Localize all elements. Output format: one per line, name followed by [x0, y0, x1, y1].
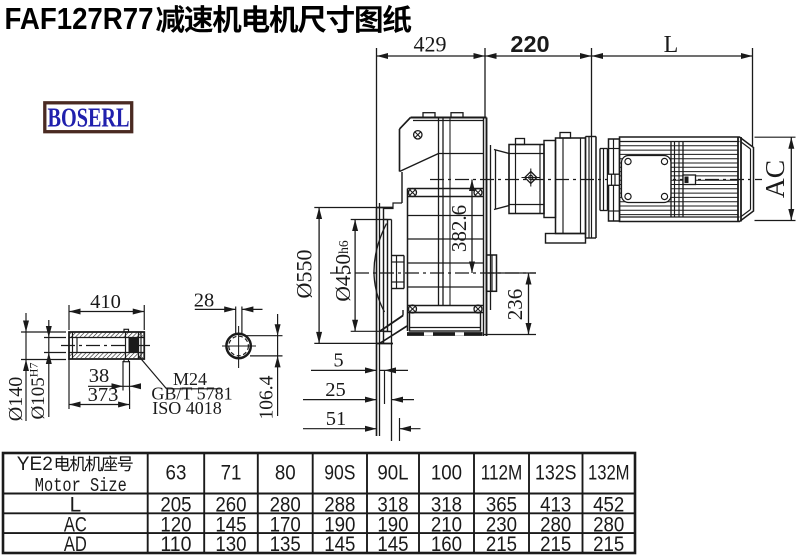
svg-text:373: 373	[88, 384, 119, 406]
svg-text:Ø550: Ø550	[292, 250, 317, 299]
svg-text:382.6: 382.6	[447, 205, 471, 252]
svg-text:Ø140: Ø140	[5, 377, 27, 421]
svg-text:100: 100	[431, 462, 462, 485]
svg-text:112M: 112M	[481, 462, 523, 485]
svg-text:215: 215	[486, 533, 517, 556]
svg-text:145: 145	[324, 533, 355, 556]
svg-text:160: 160	[431, 533, 462, 556]
svg-text:132M: 132M	[588, 462, 630, 485]
svg-text:L: L	[664, 32, 679, 58]
svg-text:220: 220	[510, 31, 549, 57]
svg-text:25: 25	[325, 379, 346, 401]
svg-text:135: 135	[270, 533, 301, 556]
svg-text:63: 63	[166, 462, 187, 485]
svg-text:YE2: YE2	[17, 454, 53, 475]
svg-text:429: 429	[414, 31, 447, 56]
svg-text:51: 51	[326, 408, 347, 430]
svg-text:236: 236	[503, 289, 527, 321]
svg-text:130: 130	[215, 533, 246, 556]
svg-text:AD: AD	[64, 533, 87, 556]
svg-text:BOSERL: BOSERL	[48, 103, 130, 133]
svg-text:410: 410	[90, 291, 121, 313]
svg-text:71: 71	[221, 462, 242, 485]
svg-text:28: 28	[194, 290, 215, 312]
svg-text:80: 80	[275, 462, 296, 485]
svg-text:90S: 90S	[324, 462, 355, 485]
svg-text:132S: 132S	[535, 462, 577, 485]
svg-text:145: 145	[377, 533, 408, 556]
svg-text:ISO 4018: ISO 4018	[152, 398, 222, 418]
svg-text:110: 110	[160, 533, 191, 556]
svg-text:AC: AC	[759, 160, 790, 198]
svg-text:FAF127R77: FAF127R77	[5, 1, 154, 36]
svg-text:90L: 90L	[377, 462, 408, 485]
svg-text:106.4: 106.4	[256, 375, 277, 419]
svg-text:215: 215	[540, 533, 571, 556]
svg-text:5: 5	[333, 350, 343, 372]
svg-text:215: 215	[593, 533, 624, 556]
